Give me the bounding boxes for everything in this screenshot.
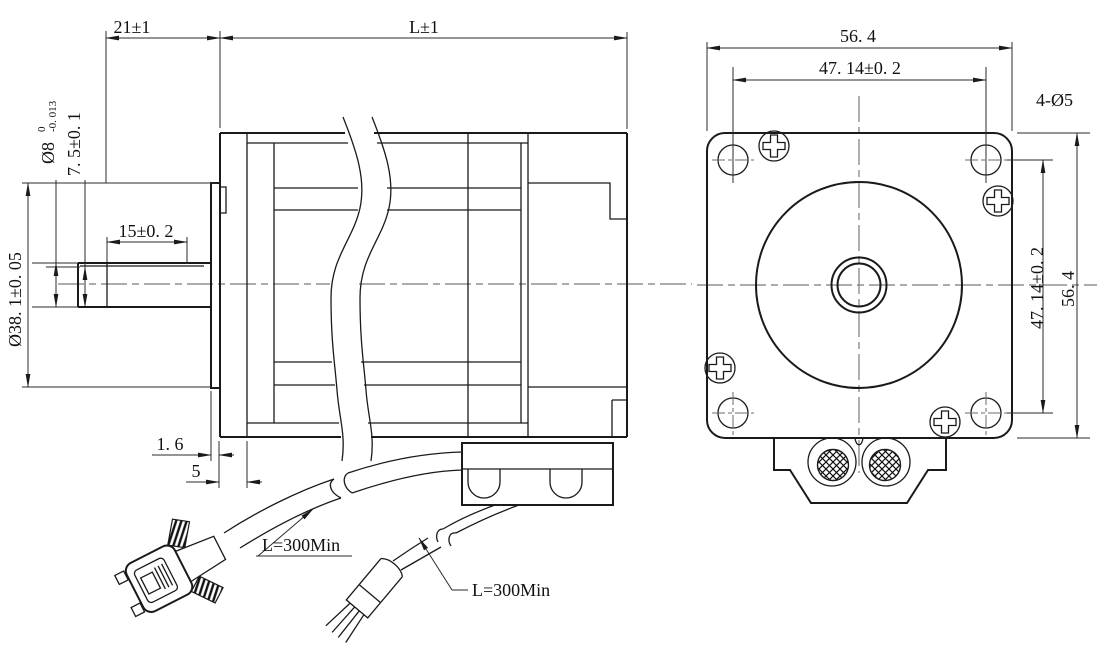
dim-boss-depth-text: 5 [192, 461, 201, 481]
cable-to-leads [393, 505, 519, 570]
motor-shaft [78, 263, 211, 307]
stepper-motor-drawing: 21±1 L±1 Ø8 0 -0. 013 7. 5±0. 1 Ø38. 1±0… [0, 0, 1108, 655]
dim-pilot-dia-text: Ø38. 1±0. 05 [5, 252, 25, 347]
dim-boss-thickness-text: 1. 6 [157, 434, 184, 454]
phillips-screw-icon [934, 411, 956, 433]
dim-hole-pitch-h-text: 47. 14±0. 2 [819, 58, 901, 78]
phillips-screw-icon [987, 190, 1009, 212]
dim-frame-width-text: 56. 4 [840, 26, 876, 46]
dim-flat-height-text: 7. 5±0. 1 [64, 112, 84, 176]
mounting-holes-text: 4-Ø5 [1036, 90, 1073, 110]
drawing-canvas: 21±1 L±1 Ø8 0 -0. 013 7. 5±0. 1 Ø38. 1±0… [0, 0, 1108, 655]
dim-hole-pitch-v-text: 47. 14±0. 2 [1027, 247, 1047, 329]
side-view: 21±1 L±1 Ø8 0 -0. 013 7. 5±0. 1 Ø38. 1±0… [5, 17, 692, 644]
front-view: 56. 4 47. 14±0. 2 4-Ø5 47. 14±0. 2 56. 4 [697, 26, 1097, 503]
dim-shaft-dia-text: Ø8 [38, 142, 58, 164]
dim-hole-pitch-vertical: 47. 14±0. 2 [1007, 160, 1053, 413]
flying-lead-connector [324, 555, 405, 644]
label-db9-cable-length: L=300Min [256, 509, 352, 556]
front-boss [211, 183, 220, 388]
db9-cable-length-text: L=300Min [262, 535, 340, 555]
phillips-screw-icon [763, 135, 785, 157]
break-lines [331, 117, 391, 461]
dim-flat-height: 7. 5±0. 1 [64, 112, 85, 307]
cable-to-db9 [224, 452, 462, 548]
dim-flat-length: 15±0. 2 [107, 221, 187, 264]
motor-body [220, 133, 627, 437]
cable-cross-section [818, 450, 849, 481]
phillips-screw-icon [709, 357, 731, 379]
lead-cable-length-text: L=300Min [472, 580, 550, 600]
label-mounting-holes: 4-Ø5 [1036, 90, 1073, 110]
dim-flat-length-text: 15±0. 2 [119, 221, 174, 241]
dim-boss-depth: 5 [186, 441, 262, 488]
cable-cross-section [870, 450, 901, 481]
dim-body-length: L±1 [220, 17, 627, 129]
dim-body-length-text: L±1 [409, 17, 439, 37]
label-lead-cable-length: L=300Min [419, 538, 550, 600]
dim-pilot-diameter: Ø38. 1±0. 05 [5, 183, 217, 387]
cable-exit-housing [774, 438, 946, 503]
dim-shaft-tol-lower: -0. 013 [47, 100, 59, 132]
dim-frame-height-text: 56. 4 [1058, 271, 1078, 307]
dim-front-length-text: 21±1 [114, 17, 151, 37]
dim-front-length: 21±1 [106, 17, 220, 183]
db9-connector [104, 506, 241, 638]
terminal-block [462, 443, 613, 505]
